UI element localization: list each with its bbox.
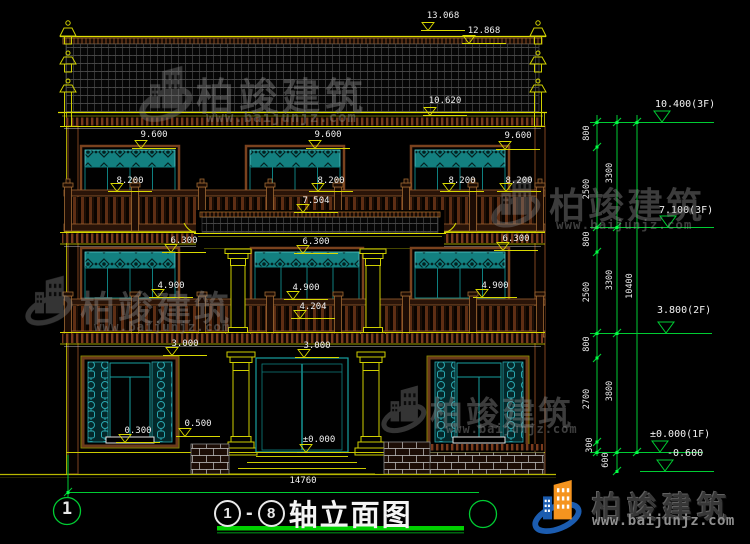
dim-6300-center: 6.300 [294,237,338,247]
dim-ridge-13068: 13.068 [421,11,465,21]
cad-elevation-drawing: 13.068 12.868 10.620 9.600 9.600 9.600 8… [0,0,750,544]
chain-2700: 2700 [582,379,592,419]
dim-overall-width: 14760 [281,476,325,486]
chain-3300-b: 3300 [605,260,615,300]
level-10400-3f: 10.400(3F) [655,99,735,110]
title-dash: - [246,502,253,525]
chain-300: 300 [585,425,595,465]
dim-zero: ±0.000 [297,435,341,445]
chain-2500-b: 2500 [582,272,592,312]
level-minus-0600: -0.600 [667,448,747,459]
dim-4900-right: 4.900 [473,281,517,291]
floor3-windows [81,146,509,194]
title-axis-start-bubble: 1 [214,500,241,527]
chain-800-c: 800 [582,324,592,364]
dim-9600-center: 9.600 [306,130,350,140]
dim-9600-right: 9.600 [496,131,540,141]
level-0000-1f: ±0.000(1F) [650,429,730,440]
dim-3000-left: 3.000 [163,339,207,349]
dim-12868: 12.868 [462,26,506,36]
dim-10620: 10.620 [423,96,467,106]
brand-logo-icon [532,480,583,537]
dim-8200-2: 8.200 [309,176,353,186]
title-text: 轴立面图 [289,492,413,534]
dim-3000-right: 3.000 [295,341,339,351]
dim-4900-center: 4.900 [284,283,328,293]
dim-0500: 0.500 [176,419,220,429]
axis-bubble-1: 1 [55,499,79,519]
brand-url: www.baijunjz.com [592,513,735,529]
dim-7504: 7.504 [294,196,338,206]
dim-4204: 4.204 [291,302,335,312]
dim-0300: 0.300 [116,426,160,436]
chain-600: 600 [601,440,611,480]
watermark-url-3: www.baijunjz.com [94,319,230,334]
chain-800-a: 800 [582,113,592,153]
dim-8200-3: 8.200 [440,176,484,186]
watermark-url-2: www.baijunjz.com [556,217,692,232]
chain-3800: 3800 [605,371,615,411]
dim-6300-left: 6.300 [162,236,206,246]
watermark-url-1: www.baijunjz.com [206,110,357,126]
level-3800-2f: 3.800(2F) [657,305,737,316]
watermark-url-4: www.baijunjz.com [446,422,578,436]
drawing-linework [0,0,750,544]
chain-total-10400: 10400 [625,266,635,306]
drawing-title: 1 - 8 轴立面图 [214,492,413,534]
title-axis-end-bubble: 8 [258,500,285,527]
dim-8200-1: 8.200 [108,176,152,186]
dim-9600-left: 9.600 [132,130,176,140]
dim-6300-right: 6.300 [494,234,538,244]
dim-8200-4: 8.200 [497,176,541,186]
